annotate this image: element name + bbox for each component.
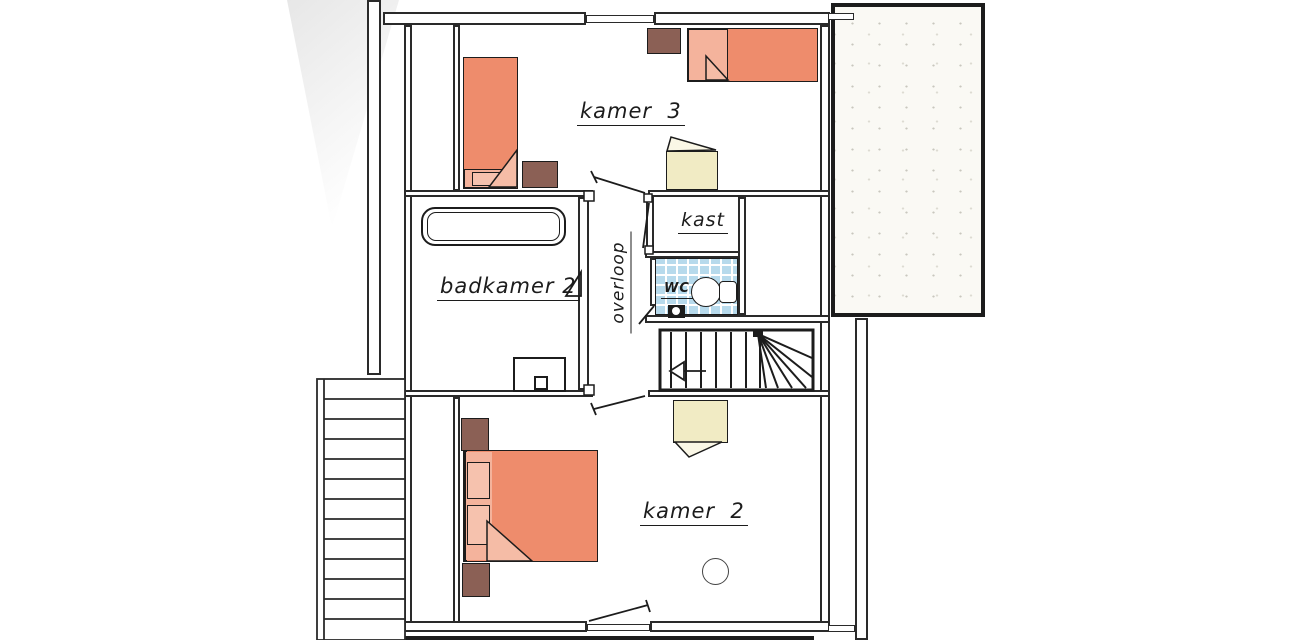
exterior-wall-left <box>367 0 381 375</box>
wc-hand-basin <box>668 305 685 318</box>
wall-kamer2-north-b <box>648 390 830 397</box>
nightstand <box>462 563 490 597</box>
door-sill-kamer2 <box>587 624 650 631</box>
top-window-band-left <box>383 12 586 25</box>
label-kamer3: kamer 3 <box>577 101 685 126</box>
wall-badkamer-overloop <box>578 197 589 390</box>
stool <box>702 558 729 585</box>
interior-staircase <box>660 329 813 390</box>
nightstand <box>461 418 489 451</box>
bathtub-inner <box>427 212 560 241</box>
stair-direction-arrow <box>670 362 684 380</box>
pillow <box>467 505 490 545</box>
knee-wall-kamer2 <box>453 397 460 623</box>
wall-kamer2-south-a <box>404 621 587 632</box>
wall-stub-southeast <box>828 625 855 632</box>
wall-kamer2-south-b <box>650 621 830 632</box>
scan-shading <box>287 0 399 228</box>
door-kamer2-south <box>589 605 648 621</box>
door-kamer2-north <box>594 396 645 409</box>
label-kamer2: kamer 2 <box>640 501 748 526</box>
toilet-bowl <box>691 277 721 307</box>
floor-plan-canvas: kamer 3 kast overloop badkamer 2 WC kame… <box>0 0 1300 640</box>
wall-kast-south <box>645 251 745 258</box>
wall-kamer3-south-a <box>404 190 593 197</box>
label-badkamer2: badkamer 2 <box>437 276 580 301</box>
wall-kamer3-south-b <box>648 190 830 197</box>
label-kast: kast <box>678 211 728 234</box>
chair-flap <box>667 137 716 151</box>
chair-flap <box>675 442 722 457</box>
roof-terrace <box>831 3 985 317</box>
lower-roof-line <box>380 636 814 640</box>
knee-wall-kamer3 <box>453 25 460 191</box>
exterior-staircase <box>317 379 405 640</box>
pillow <box>688 29 728 81</box>
pillow <box>472 172 503 186</box>
wall-stub-southwest <box>381 625 406 632</box>
washbasin-bowl <box>534 376 548 390</box>
chair-kamer3 <box>666 151 718 190</box>
house-wall-east <box>820 25 830 630</box>
label-overloop: overloop <box>611 232 632 334</box>
toilet-tank <box>719 281 737 303</box>
wall-overloop-kast <box>646 197 654 251</box>
stair-newel <box>753 329 763 337</box>
nightstand <box>647 28 681 54</box>
door-kamer3 <box>594 177 645 193</box>
top-window-band-right <box>654 12 830 25</box>
pillow <box>467 462 490 499</box>
exterior-wall-right <box>855 318 868 640</box>
top-window-center <box>586 15 654 23</box>
top-wall-stub-right <box>828 13 854 20</box>
chair-kamer2 <box>673 400 728 443</box>
house-wall-west <box>404 25 412 632</box>
nightstand <box>522 161 558 188</box>
wall-kast-east <box>738 197 746 315</box>
label-wc: WC <box>661 282 693 299</box>
